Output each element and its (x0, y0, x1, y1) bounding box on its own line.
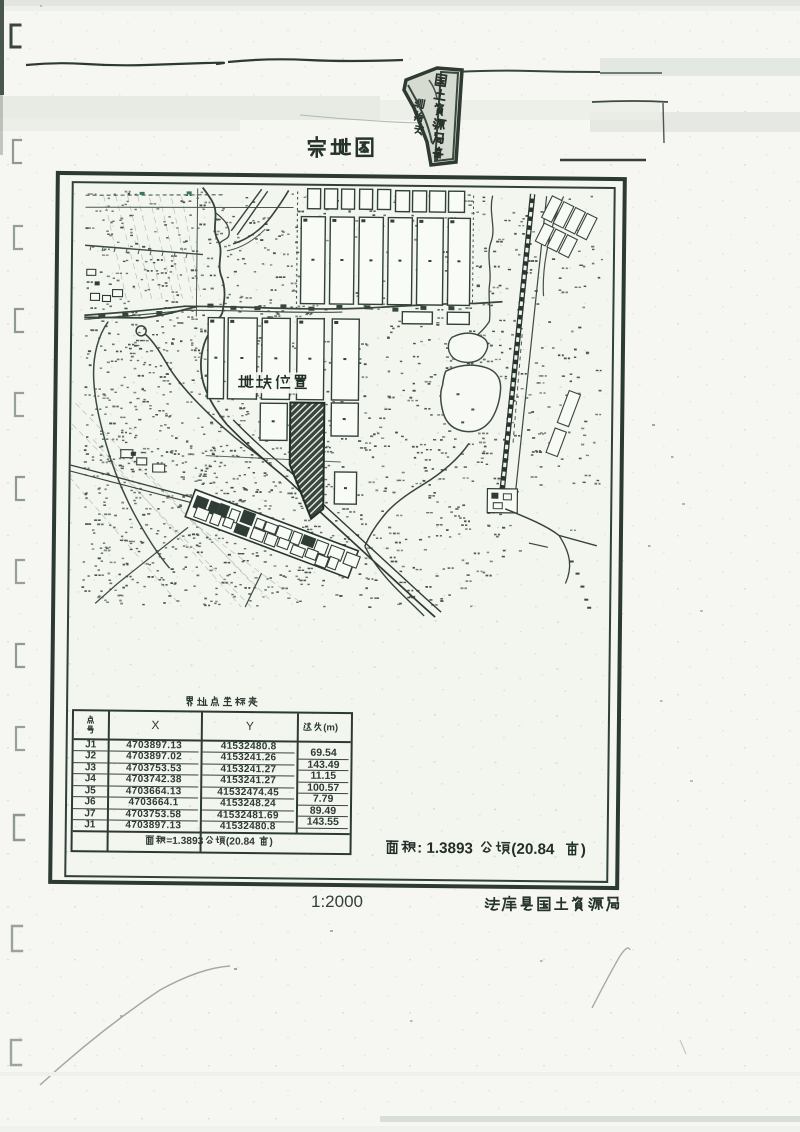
svg-text:=1.3893: =1.3893 (166, 836, 204, 847)
svg-text:): ) (581, 841, 586, 858)
svg-text:(20.84: (20.84 (511, 841, 555, 858)
svg-text:(m): (m) (323, 722, 338, 733)
svg-text:(20.84: (20.84 (226, 836, 255, 847)
svg-text:): ) (269, 837, 273, 848)
svg-text:: 1.3893: : 1.3893 (417, 840, 473, 858)
